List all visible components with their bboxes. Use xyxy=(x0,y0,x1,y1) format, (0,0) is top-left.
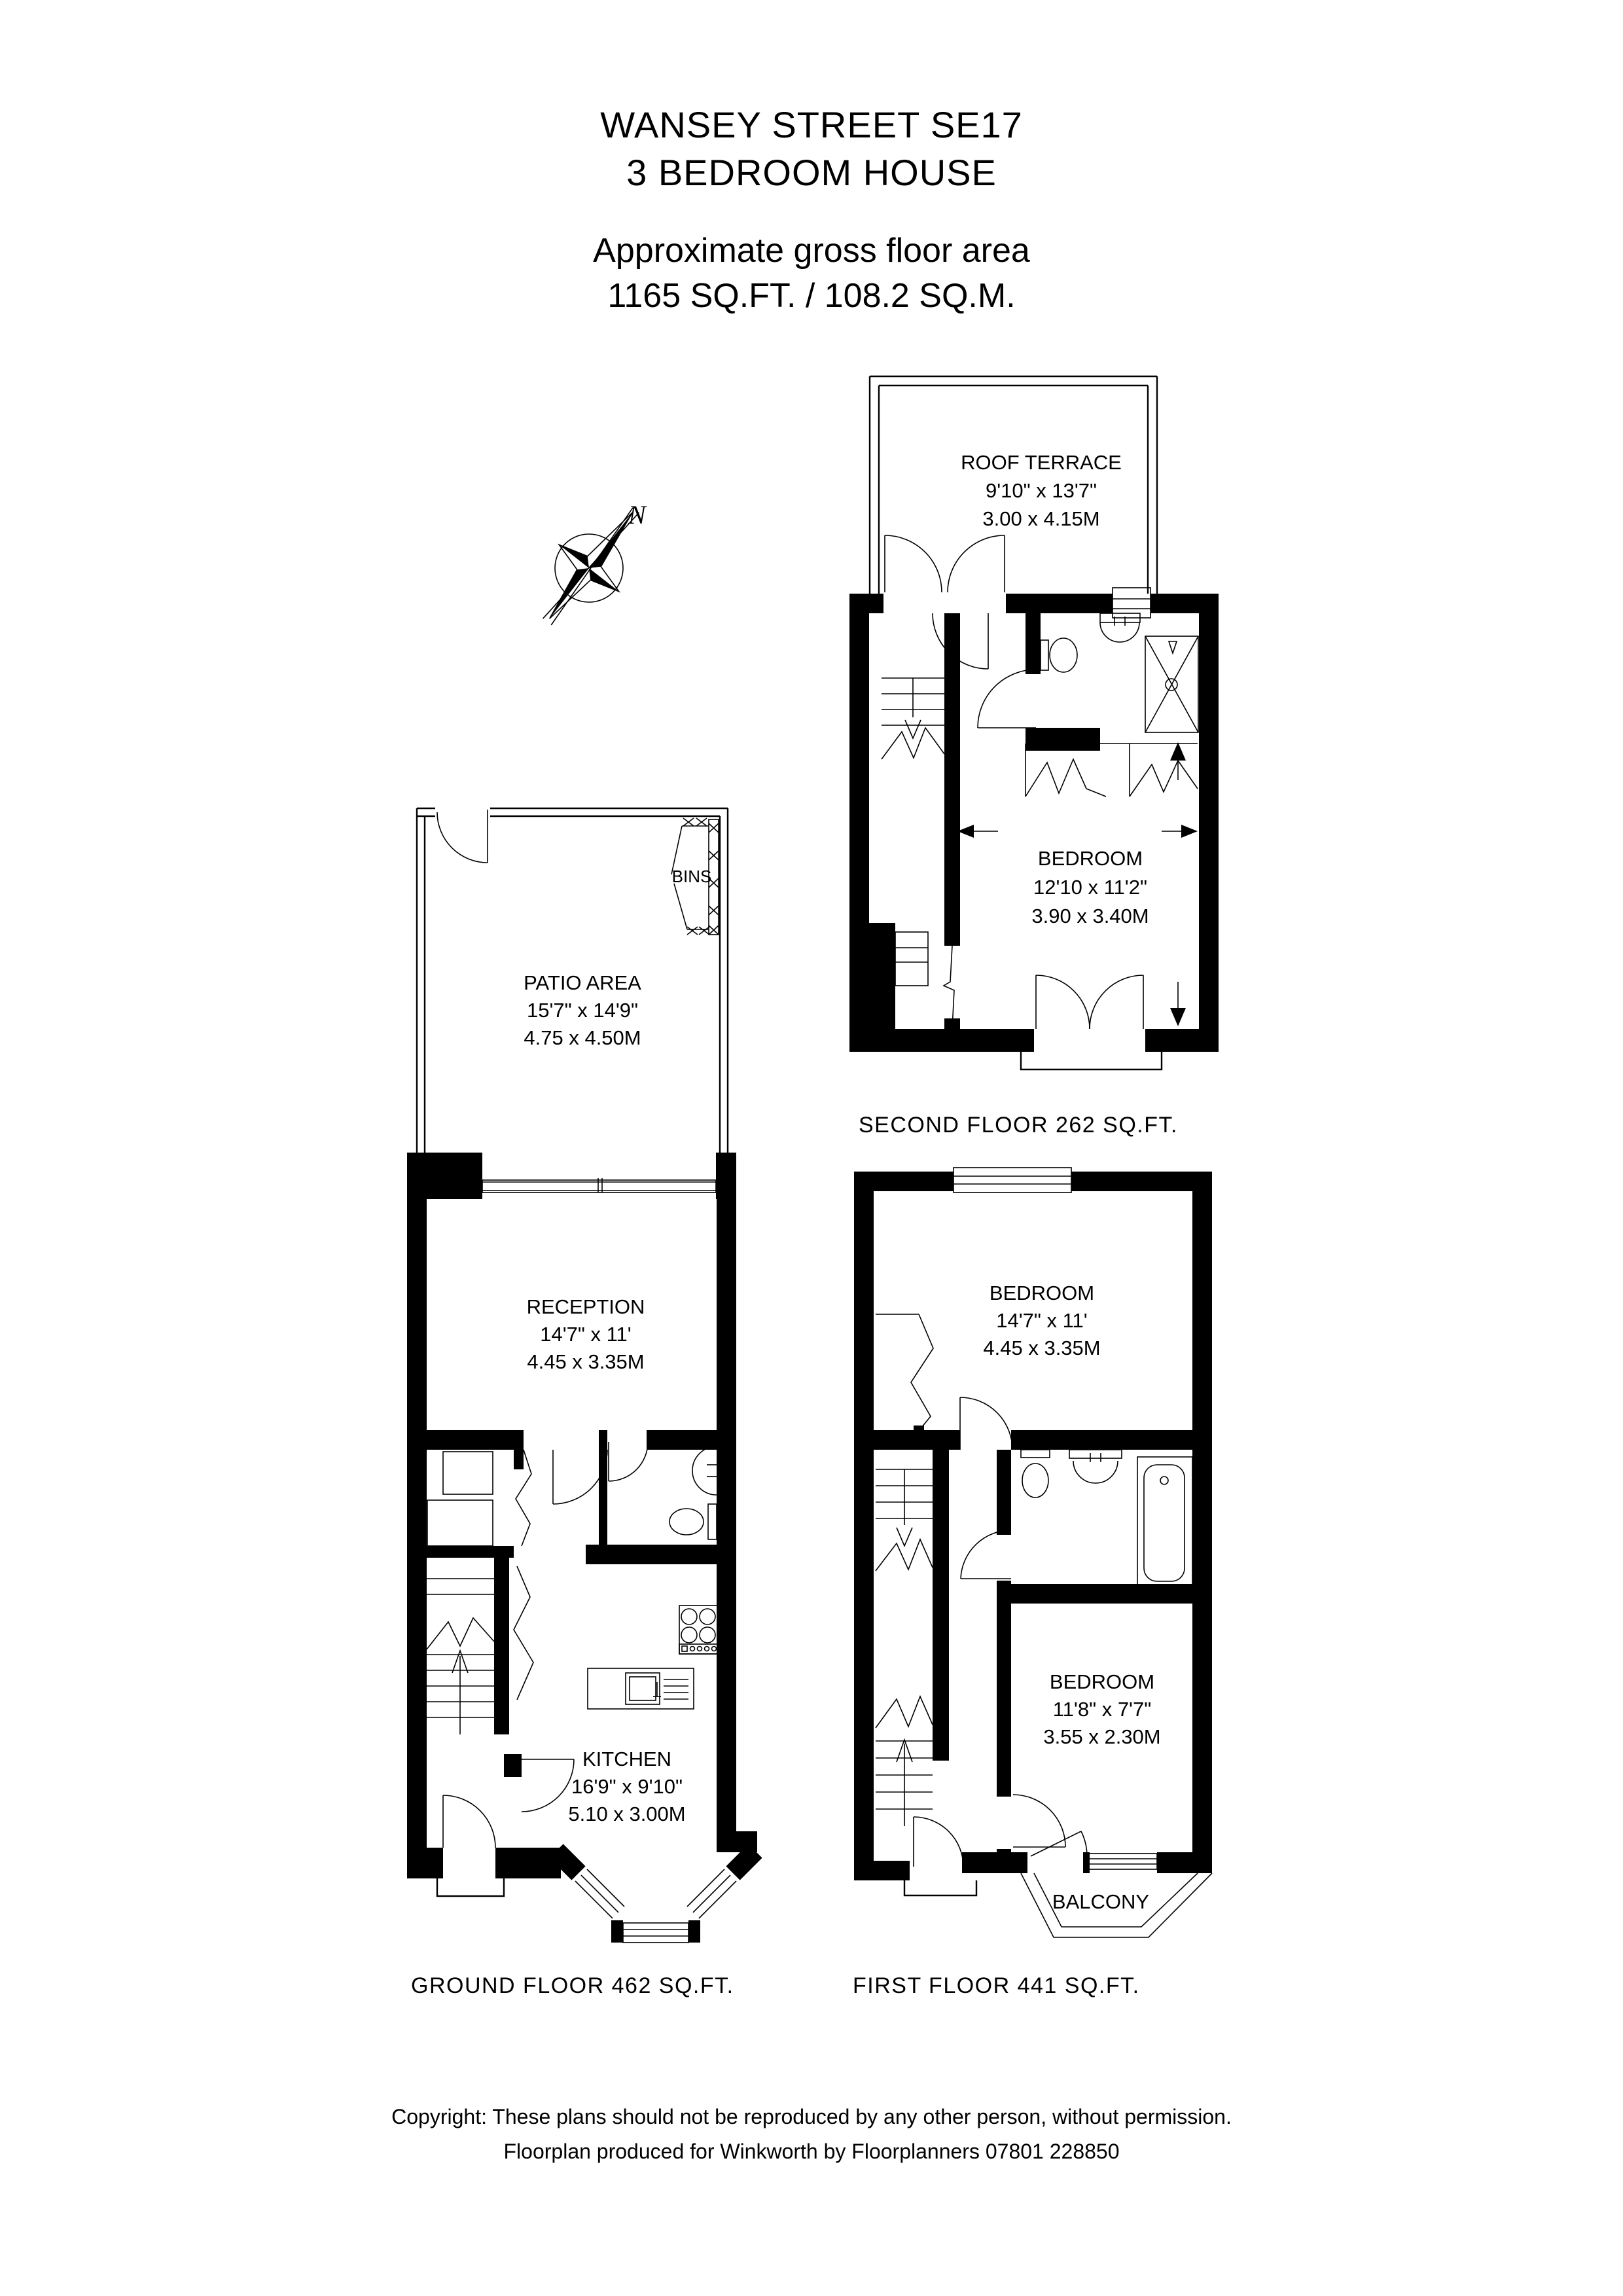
room-label-bedroom-rear: BEDROOM 11'8" x 7'7" 3.55 x 2.30M xyxy=(1043,1670,1160,1748)
footer: Copyright: These plans should not be rep… xyxy=(391,2105,1232,2163)
balcony-label: BALCONY xyxy=(1052,1890,1149,1913)
first-floor-walls xyxy=(854,1172,1212,1880)
window xyxy=(1088,1854,1157,1869)
room-dim-imperial: 16'9" x 9'10" xyxy=(571,1775,683,1798)
up-arrow-icon xyxy=(1170,742,1186,780)
french-doors-bottom xyxy=(1021,975,1162,1069)
room-label-bedroom-second: BEDROOM 12'10 x 11'2" 3.90 x 3.40M xyxy=(1031,847,1149,927)
page-title-line2: 3 BEDROOM HOUSE xyxy=(626,152,997,193)
front-door xyxy=(437,1795,504,1896)
door-arc xyxy=(960,1397,1012,1450)
caption-first-floor: FIRST FLOOR 441 SQ.FT. xyxy=(853,1973,1140,1998)
sink-icon xyxy=(588,1668,694,1709)
balcony-door xyxy=(1031,1831,1087,1856)
recess-outline xyxy=(1021,1052,1162,1069)
floor-plan-ground: BINS xyxy=(407,808,757,1998)
door-arc xyxy=(961,1530,1011,1579)
balcony: BALCONY xyxy=(1021,1873,1212,1937)
bath-icon xyxy=(1137,1457,1192,1588)
room-name: RECEPTION xyxy=(527,1295,645,1318)
internal-walls xyxy=(874,1430,1212,1865)
room-dim-imperial: 15'7" x 14'9" xyxy=(527,999,638,1022)
door-arc xyxy=(1013,1795,1065,1847)
toilet-icon xyxy=(1041,638,1077,672)
room-label-roof-terrace: ROOF TERRACE 9'10" x 13'7" 3.00 x 4.15M xyxy=(961,451,1122,530)
dimension-arrow-right xyxy=(1162,825,1198,838)
basin-icon xyxy=(1069,1450,1122,1483)
internal-walls xyxy=(427,1430,736,1777)
caption-ground-floor: GROUND FLOOR 462 SQ.FT. xyxy=(411,1973,734,1998)
room-name: BEDROOM xyxy=(1038,847,1143,870)
bins-label: BINS xyxy=(672,867,712,886)
folding-door xyxy=(514,1566,533,1700)
stairs xyxy=(876,1469,933,1826)
dimension-arrow-left xyxy=(957,825,998,838)
wall xyxy=(944,613,960,946)
room-name: BEDROOM xyxy=(990,1282,1094,1304)
room-dim-imperial: 11'8" x 7'7" xyxy=(1053,1698,1151,1721)
wardrobe xyxy=(876,1314,933,1432)
toilet-icon xyxy=(1021,1450,1050,1498)
floor-plan-second: ROOF TERRACE 9'10" x 13'7" 3.00 x 4.15M … xyxy=(849,376,1219,1138)
floorplan-drawing: WANSEY STREET SE17 3 BEDROOM HOUSE Appro… xyxy=(0,0,1623,2296)
french-doors-terrace xyxy=(885,535,1005,592)
room-dim-metric: 4.45 x 3.35M xyxy=(527,1350,644,1373)
compass-rose: N xyxy=(517,486,665,645)
copyright-line2: Floorplan produced for Winkworth by Floo… xyxy=(504,2140,1120,2163)
down-arrow-icon xyxy=(1170,982,1186,1026)
caption-second-floor: SECOND FLOOR 262 SQ.FT. xyxy=(859,1113,1178,1138)
bins-store: BINS xyxy=(671,818,719,935)
page-title-line1: WANSEY STREET SE17 xyxy=(600,104,1023,145)
room-dim-metric: 4.45 x 3.35M xyxy=(983,1336,1100,1359)
shower-room xyxy=(978,613,1198,751)
floorplan-page: WANSEY STREET SE17 3 BEDROOM HOUSE Appro… xyxy=(0,0,1623,2296)
porch-recess xyxy=(904,1880,976,1895)
door-arc xyxy=(933,613,988,669)
door-arc xyxy=(609,1442,648,1481)
copyright-line1: Copyright: These plans should not be rep… xyxy=(391,2105,1232,2128)
room-dim-metric: 3.00 x 4.15M xyxy=(982,507,1099,530)
wc-room xyxy=(669,1446,717,1539)
room-dim-metric: 3.90 x 3.40M xyxy=(1031,905,1149,927)
shower-icon xyxy=(1145,636,1198,732)
ground-floor-walls xyxy=(407,1153,736,1878)
room-dim-metric: 5.10 x 3.00M xyxy=(568,1803,685,1825)
room-name: ROOF TERRACE xyxy=(961,451,1122,474)
bay-window xyxy=(556,1831,757,1943)
room-dim-imperial: 14'7" x 11' xyxy=(996,1309,1087,1332)
room-dim-metric: 4.75 x 4.50M xyxy=(524,1026,641,1049)
porch-recess xyxy=(437,1878,504,1896)
room-dim-imperial: 14'7" x 11' xyxy=(540,1323,631,1346)
stairs xyxy=(427,1579,494,1734)
north-label: N xyxy=(628,500,647,529)
window xyxy=(482,1178,716,1193)
room-name: PATIO AREA xyxy=(524,971,641,994)
bathroom xyxy=(1021,1450,1192,1588)
header: WANSEY STREET SE17 3 BEDROOM HOUSE Appro… xyxy=(593,104,1030,315)
gate-door-arc xyxy=(437,810,488,863)
hob-icon xyxy=(679,1605,717,1654)
subtitle-line1: Approximate gross floor area xyxy=(593,232,1030,270)
room-name: KITCHEN xyxy=(582,1748,671,1770)
floor-plan-first: BALCONY BEDROOM 14'7" x 11' 4.45 x 3.35M… xyxy=(853,1168,1212,1998)
room-name: BEDROOM xyxy=(1050,1670,1154,1693)
room-label-reception: RECEPTION 14'7" x 11' 4.45 x 3.35M xyxy=(527,1295,645,1373)
room-dim-metric: 3.55 x 2.30M xyxy=(1043,1725,1160,1748)
subtitle-line2: 1165 SQ.FT. / 108.2 SQ.M. xyxy=(607,277,1015,315)
room-dim-imperial: 9'10" x 13'7" xyxy=(986,479,1097,502)
room-label-kitchen: KITCHEN 16'9" x 9'10" 5.10 x 3.00M xyxy=(568,1748,685,1825)
door-arc xyxy=(522,1759,574,1812)
toilet-icon xyxy=(669,1504,717,1539)
room-dim-imperial: 12'10 x 11'2" xyxy=(1033,876,1147,899)
room-label-bedroom-front: BEDROOM 14'7" x 11' 4.45 x 3.35M xyxy=(983,1282,1100,1359)
basin-icon xyxy=(692,1446,717,1495)
window xyxy=(954,1168,1071,1193)
room-label-patio: PATIO AREA 15'7" x 14'9" 4.75 x 4.50M xyxy=(524,971,641,1049)
